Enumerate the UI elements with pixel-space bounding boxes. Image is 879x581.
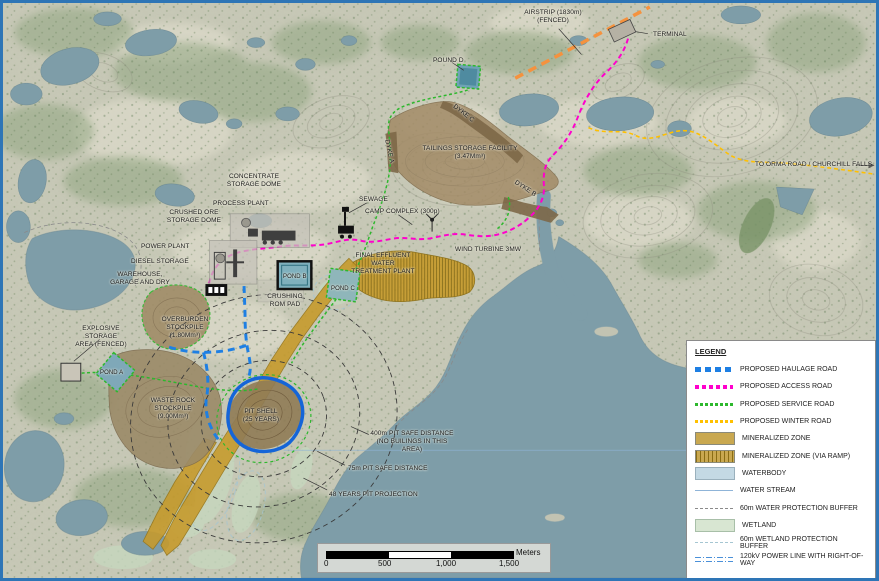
legend-item-haulage-road: PROPOSED HAULAGE ROAD	[695, 361, 867, 378]
label-crushing-rom-pad: CRUSHING ROM PAD	[267, 293, 303, 309]
pond-d	[456, 64, 481, 89]
label-concentrate-dome: CONCENTRATE STORAGE DOME	[225, 173, 283, 189]
label-wind-turbine: WIND TURBINE 3MW	[455, 246, 521, 254]
scale-bar: 0 500 1,000 1,500 Meters	[317, 543, 551, 573]
scale-tick-1000: 1,000	[436, 559, 456, 568]
label-airstrip: AIRSTRIP (1830m) (FENCED)	[508, 9, 598, 25]
label-explosive-storage: EXPLOSIVE STORAGE AREA (FENCED)	[67, 325, 135, 349]
legend-item-mineralized-zone-ramp: MINERALIZED ZONE (VIA RAMP)	[695, 447, 867, 464]
scale-bar-graphic	[326, 551, 514, 559]
label-400m-safe-distance: 400m PIT SAFE DISTANCE (NO BUILINGS IN T…	[369, 430, 455, 454]
label-tailings-facility: TAILINGS STORAGE FACILITY (3.47Mm³)	[411, 145, 529, 161]
legend-item-access-road: PROPOSED ACCESS ROAD	[695, 378, 867, 395]
legend-item-water-stream: WATER STREAM	[695, 482, 867, 499]
legend-panel: LEGEND PROPOSED HAULAGE ROAD PROPOSED AC…	[686, 340, 876, 581]
label-camp-complex: CAMP COMPLEX (300p)	[365, 208, 440, 216]
label-orma-road: TO ORMA ROAD / CHURCHILL FALLS	[755, 161, 872, 169]
label-overburden-stockpile: OVERBURDEN STOCKPILE (1.80Mm³)	[154, 316, 216, 340]
label-48yr-projection: 48 YEARS PIT PROJECTION	[329, 491, 418, 499]
legend-item-mineralized-zone: MINERALIZED ZONE	[695, 430, 867, 447]
label-pond-d: POUND D	[433, 57, 464, 65]
legend-title: LEGEND	[695, 347, 867, 356]
legend-item-wetland-buffer: 60m WETLAND PROTECTION BUFFER	[695, 534, 867, 551]
legend-item-winter-road: PROPOSED WINTER ROAD	[695, 413, 867, 430]
label-terminal: TERMINAL	[653, 31, 687, 39]
wetland-buffer-swatch	[695, 542, 733, 543]
power-line-swatch	[695, 556, 733, 563]
legend-item-power-line: 120kV POWER LINE WITH RIGHT-OF-WAY	[695, 551, 867, 568]
wetland-swatch	[695, 519, 735, 532]
waterbody-swatch	[695, 467, 735, 480]
haulage-road-swatch	[695, 367, 733, 372]
mineralized-zone-ramp-swatch	[695, 450, 735, 463]
winter-road-swatch	[695, 420, 733, 423]
label-effluent-plant: FINAL EFFLUENT WATER TREATMENT PLANT	[345, 252, 421, 276]
scale-tick-1500: 1,500	[499, 559, 519, 568]
label-crushed-ore-dome: CRUSHED ORE STORAGE DOME	[166, 209, 222, 225]
water-buffer-swatch	[695, 508, 733, 509]
explosive-storage-building	[61, 363, 81, 381]
legend-item-service-road: PROPOSED SERVICE ROAD	[695, 396, 867, 413]
label-diesel-storage: DIESEL STORAGE	[131, 258, 189, 266]
scale-tick-0: 0	[324, 559, 328, 568]
water-stream-swatch	[695, 490, 733, 491]
legend-item-water-buffer: 60m WATER PROTECTION BUFFER	[695, 499, 867, 516]
legend-item-waterbody: WATERBODY	[695, 465, 867, 482]
label-power-plant: POWER PLANT	[141, 243, 189, 251]
scale-unit-label: Meters	[516, 548, 540, 557]
scale-tick-500: 500	[378, 559, 391, 568]
label-warehouse: WAREHOUSE, GARAGE AND DRY	[109, 271, 171, 287]
label-75m-safe-distance: 75m PIT SAFE DISTANCE	[348, 465, 428, 473]
service-road-swatch	[695, 403, 733, 406]
label-pond-c: POND C	[331, 286, 355, 294]
mineralized-zone-swatch	[695, 432, 735, 445]
label-pit-shell: PIT SHELL (25 YEARS)	[235, 408, 287, 424]
label-pond-b: POND B	[283, 274, 307, 282]
legend-item-wetland: WETLAND	[695, 517, 867, 534]
site-plan-map: AIRSTRIP (1830m) (FENCED) TERMINAL POUND…	[0, 0, 879, 581]
label-sewage: SEWAGE	[359, 196, 388, 204]
label-waste-rock-stockpile: WASTE ROCK STOCKPILE (9.00Mm³)	[143, 397, 203, 421]
label-process-plant: PROCESS PLANT	[213, 200, 269, 208]
striped-building	[205, 284, 227, 296]
label-pond-a: POND A	[100, 370, 123, 378]
access-road-swatch	[695, 385, 733, 389]
